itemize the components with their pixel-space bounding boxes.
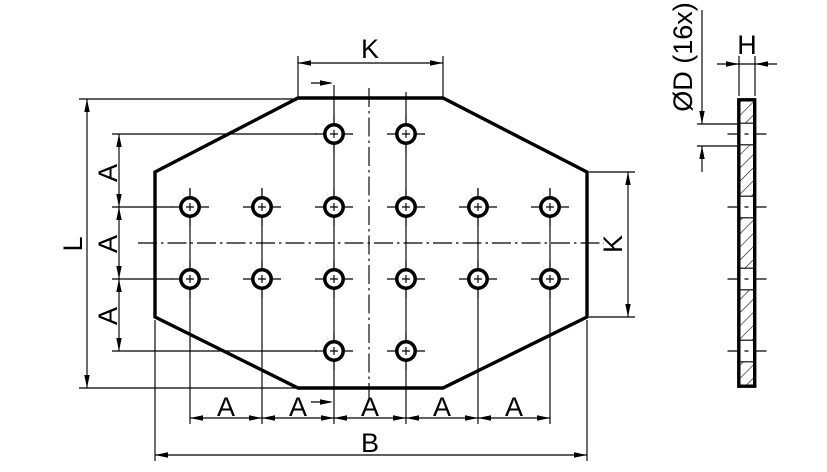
arrowhead [430,60,443,65]
hole-centermark [315,115,353,153]
label-L: L [58,236,88,251]
hole-centermark [315,188,353,226]
arrowhead [465,415,478,420]
dimension-arrowheads [84,60,768,457]
label-A-bottom-1: A [217,392,235,422]
label-H: H [737,30,757,60]
arrowhead [393,415,406,420]
hole-centermark [315,260,353,298]
label-K-top: K [361,34,379,64]
arrowhead [320,80,333,85]
arrowhead [321,415,334,420]
label-K-right: K [598,235,628,253]
hole-centermark [387,115,425,153]
arrowhead [298,60,311,65]
arrowhead [116,338,121,351]
label-A-bottom-5: A [505,392,523,422]
hole-centermark [459,188,497,226]
dimension-lines-front [79,56,635,461]
arrowhead [726,61,739,66]
arrowhead [116,134,121,147]
hole-centermark [243,260,281,298]
arrowhead [478,415,491,420]
label-B: B [361,428,379,458]
arrowhead [699,146,704,159]
technical-drawing: K K L A A A A A A A A B H ØD (16x) [0,0,827,472]
side-view [697,10,777,386]
arrowhead [574,452,587,457]
arrowhead [262,415,275,420]
label-A-left-1: A [93,164,123,182]
hole-centermark [531,260,569,298]
arrowhead [406,415,419,420]
arrowhead [334,415,347,420]
arrowhead [320,399,333,404]
arrowhead [84,375,89,388]
hole-centermark [171,260,209,298]
label-A-bottom-3: A [361,392,379,422]
arrowhead [755,61,768,66]
arrowhead [116,194,121,207]
hole-centermark [387,260,425,298]
arrowhead [249,415,262,420]
label-D-holes: ØD (16x) [668,2,698,112]
hole-centermark [315,332,353,370]
hole-centermark [243,188,281,226]
label-A-bottom-4: A [433,392,451,422]
arrowhead [699,111,704,124]
arrowhead [155,452,168,457]
arrowhead [116,279,121,292]
arrowhead [116,207,121,220]
arrowhead [537,415,550,420]
hole-centermark [387,332,425,370]
hole-centermark [171,188,209,226]
hole-centermark [531,188,569,226]
hole-centermark [459,260,497,298]
arrowhead [116,266,121,279]
label-A-left-2: A [93,235,123,253]
drawing-canvas: K K L A A A A A A A A B H ØD (16x) [0,0,827,472]
arrowhead [190,415,203,420]
label-A-left-3: A [93,307,123,325]
label-A-bottom-2: A [289,392,307,422]
arrowhead [84,99,89,112]
arrowhead [625,304,630,317]
hole-centermark [387,188,425,226]
arrowhead [625,172,630,185]
